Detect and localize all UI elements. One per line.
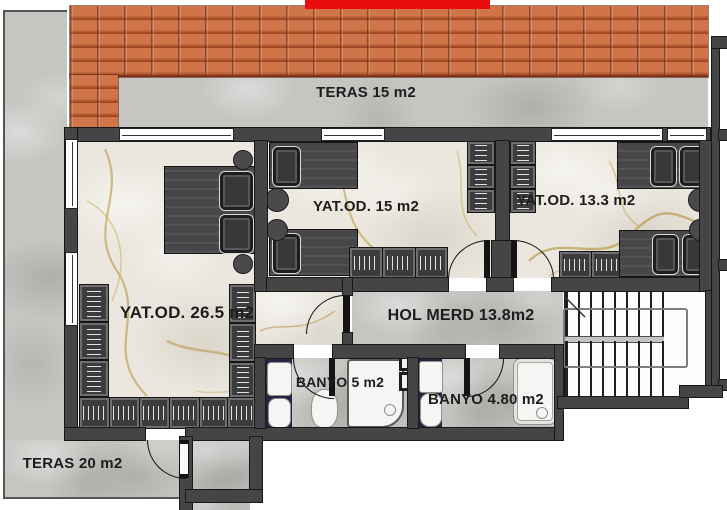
wardrobe [80, 361, 108, 396]
door-leaf [343, 295, 350, 333]
nightstand [233, 150, 253, 170]
pillow [272, 146, 301, 187]
wall [680, 386, 722, 397]
wall [267, 278, 448, 291]
room-label-teras-20: TERAS 20 m2 [0, 455, 145, 472]
door-leaf [484, 240, 490, 278]
room-label-yatod-15: YAT.OD. 15 m2 [266, 198, 466, 215]
nightstand [233, 254, 253, 274]
nightstand [266, 219, 288, 241]
wardrobe [383, 248, 415, 278]
wall [719, 260, 727, 270]
wardrobe [230, 324, 255, 361]
vestibule-floor [192, 437, 250, 490]
room-label-teras-15: TERAS 15 m2 [266, 84, 466, 101]
room-label-yatod-13-3: YAT.OD. 13.3 m2 [476, 192, 676, 209]
wall [558, 397, 688, 408]
wardrobe [511, 166, 535, 188]
wardrobe [511, 142, 535, 164]
wardrobe [228, 398, 255, 428]
window [66, 253, 77, 325]
window [66, 140, 77, 208]
wall [255, 345, 293, 358]
wall [487, 278, 513, 291]
wardrobe [110, 398, 139, 428]
wardrobe [560, 252, 591, 278]
wall [712, 48, 719, 397]
wall [343, 278, 352, 295]
wall [255, 141, 267, 291]
wardrobe [80, 323, 108, 359]
toilet [268, 398, 291, 428]
terrace-15-floor [118, 75, 708, 128]
wall [255, 358, 265, 428]
left-walkway-floor [3, 10, 67, 442]
floor-plan: TERAS 15 m2 YAT.OD. 26.5 m2 YAT.OD. 15 m… [0, 0, 727, 510]
shower-drain [384, 404, 396, 416]
pillow [219, 214, 254, 254]
wardrobe [200, 398, 227, 428]
door-leaf [179, 440, 189, 478]
wall [333, 345, 465, 358]
roof-tiles [70, 6, 708, 77]
pillow [219, 171, 254, 211]
wardrobe [80, 398, 109, 428]
window [552, 129, 662, 140]
wardrobe [592, 252, 623, 278]
bathtub-drain [536, 407, 548, 419]
wall [700, 141, 712, 291]
wall [186, 428, 563, 440]
wardrobe [416, 248, 447, 278]
room-label-yatod-26-5: YAT.OD. 26.5 m2 [87, 303, 287, 323]
roof-tiles-left-wing [70, 75, 118, 128]
room-label-banyo-4-80: BANYO 4.80 m2 [406, 391, 566, 408]
wardrobe [468, 142, 494, 164]
wall [712, 37, 727, 48]
pillow [650, 146, 677, 187]
wardrobe [170, 398, 199, 428]
wardrobe [230, 363, 255, 397]
wall [552, 278, 705, 291]
red-banner [305, 0, 490, 9]
shower [347, 359, 404, 428]
room-label-hol-merd: HOL MERD 13.8m2 [361, 307, 561, 325]
wall [492, 241, 512, 278]
wardrobe [468, 166, 494, 188]
wall [496, 141, 509, 241]
window [120, 129, 233, 140]
toilet-tank [419, 361, 443, 393]
stairs-break-line [563, 291, 593, 321]
wall [500, 345, 563, 358]
pillow [652, 234, 679, 275]
door-leaf [511, 240, 517, 278]
wall [65, 428, 145, 440]
window [322, 129, 384, 140]
wall [186, 490, 262, 502]
room-label-banyo-5: BANYO 5 m2 [260, 374, 420, 390]
vestibule-floor-lower [192, 502, 250, 510]
wardrobe [140, 398, 169, 428]
window [668, 129, 706, 140]
wardrobe [350, 248, 382, 278]
wall [719, 130, 727, 140]
